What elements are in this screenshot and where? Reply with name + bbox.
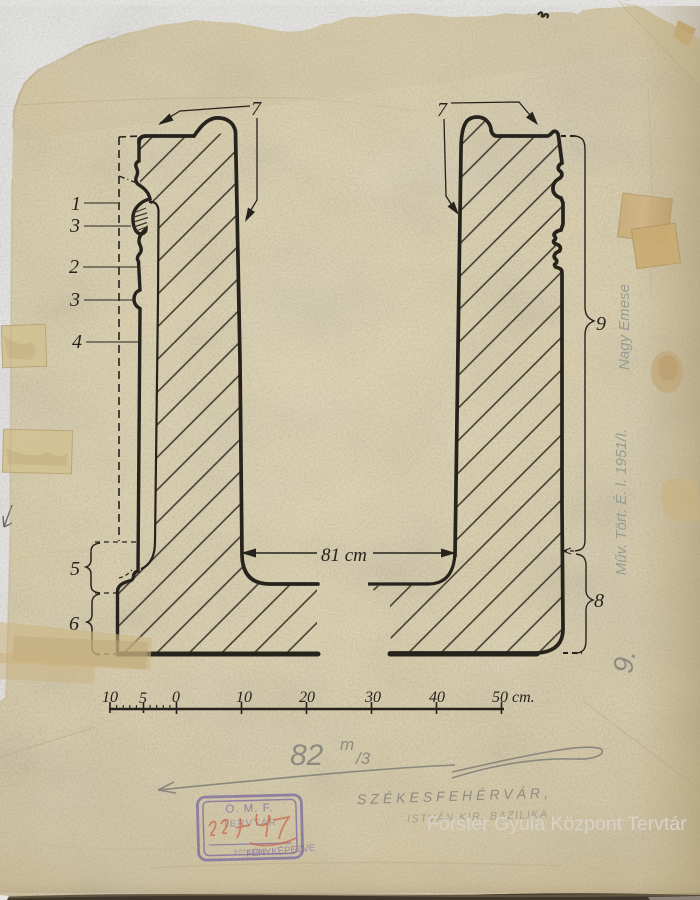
svg-text:Förster Gyula Központ Tervtár: Förster Gyula Központ Tervtár — [427, 813, 687, 835]
svg-text:O. M. F.: O. M. F. — [225, 802, 274, 815]
svg-text:3: 3 — [69, 215, 80, 237]
svg-text:7: 7 — [251, 98, 262, 120]
svg-text:3: 3 — [69, 289, 80, 311]
svg-text:2: 2 — [69, 256, 79, 278]
svg-text:0: 0 — [172, 689, 180, 706]
svg-text:10: 10 — [102, 689, 118, 706]
svg-text:30: 30 — [364, 689, 381, 706]
svg-text:9: 9 — [596, 313, 606, 335]
svg-text:5: 5 — [139, 690, 147, 707]
svg-text:4: 4 — [72, 331, 82, 353]
svg-text:40: 40 — [429, 689, 445, 706]
svg-text:7: 7 — [437, 99, 448, 121]
svg-text:8: 8 — [594, 590, 604, 612]
svg-text:/3: /3 — [355, 749, 371, 768]
svg-text:50 cm.: 50 cm. — [492, 689, 535, 706]
svg-text:82: 82 — [290, 739, 324, 772]
svg-text:1: 1 — [71, 193, 81, 215]
svg-text:Nagy Emese: Nagy Emese — [616, 284, 633, 370]
svg-text:10: 10 — [236, 689, 252, 706]
svg-text:Műv. Tört. É. l. 1951/I.: Műv. Tört. É. l. 1951/I. — [613, 429, 630, 575]
svg-text:5: 5 — [70, 558, 80, 580]
svg-text:20: 20 — [299, 689, 315, 706]
svg-text:81 cm: 81 cm — [321, 545, 367, 566]
svg-text:m: m — [340, 735, 354, 754]
